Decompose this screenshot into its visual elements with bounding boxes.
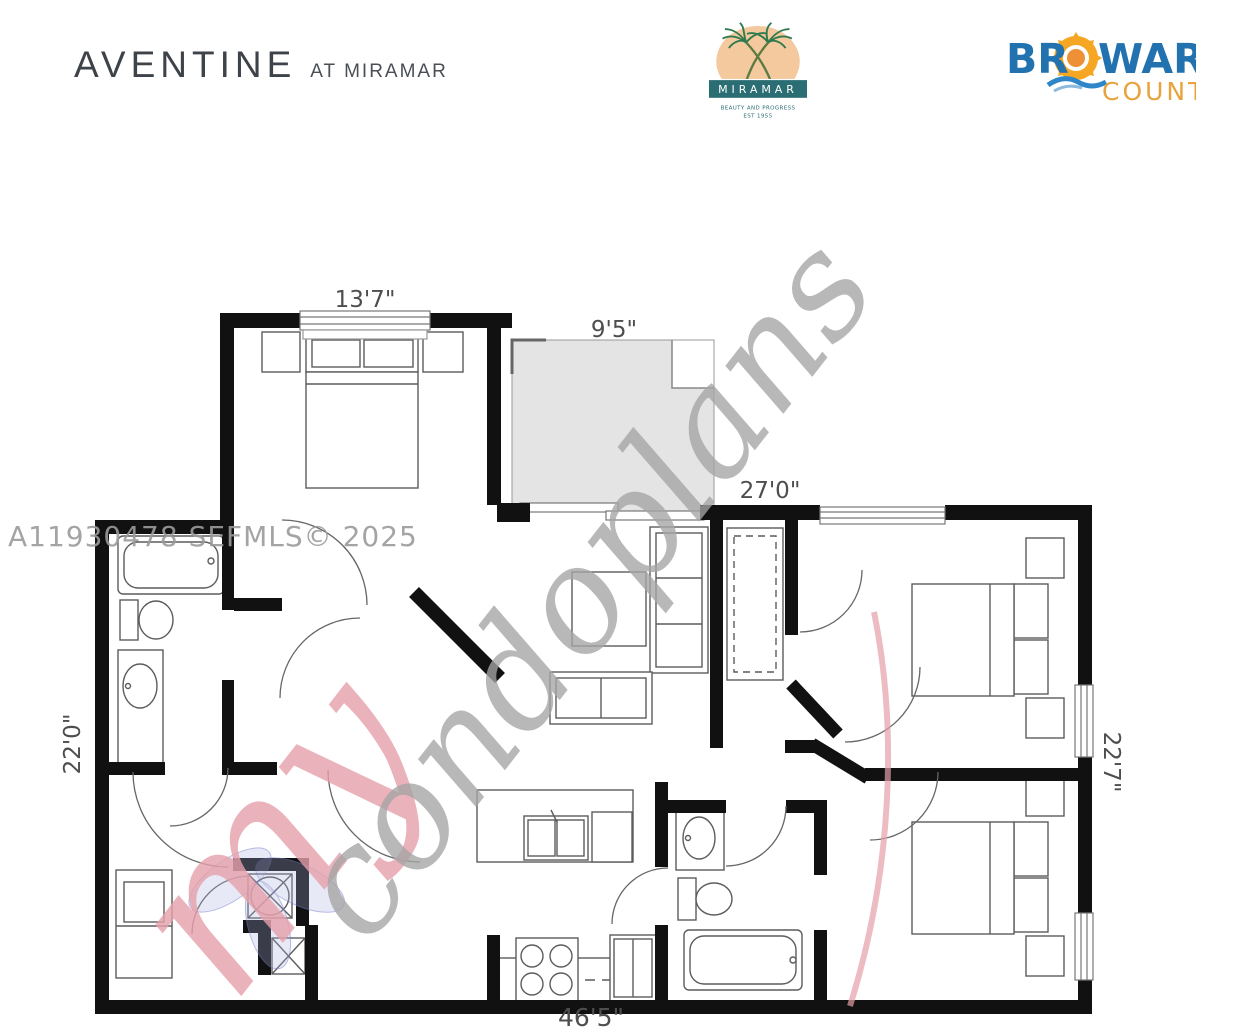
- fridge-icon: [610, 935, 656, 1001]
- bedroom2-bed-icon: [912, 538, 1064, 738]
- bedroom2-side-window: [1075, 685, 1093, 757]
- dim-left-height: 22'0": [60, 714, 86, 775]
- script-watermark-swash: [850, 612, 888, 1006]
- hall2-door-arc: [612, 868, 668, 924]
- stove-icon: [516, 938, 578, 1002]
- closet-shelves-icon: [727, 528, 783, 680]
- dim-master-width: 13'7": [335, 287, 396, 313]
- bath2-door-arc: [726, 806, 786, 866]
- bedroom3-side-window: [1075, 913, 1093, 980]
- bedroom2-top-window: [820, 507, 945, 524]
- dim-balcony-width: 9'5": [591, 317, 637, 343]
- master-window: [300, 311, 430, 339]
- bedroom3-bed-icon: [912, 776, 1064, 976]
- master-toilet-icon: [120, 600, 173, 640]
- bedroom2-door-arc: [800, 570, 862, 632]
- floorplan-sheet: AVENTINE AT MIRAMAR MIRAMAR BEAUT: [0, 0, 1239, 1033]
- floor-plan: 13'7" 9'5" 27'0" 22'0" 22'7" 46'5" A1193…: [0, 0, 1239, 1033]
- bath2-toilet-icon: [678, 878, 732, 920]
- mls-watermark: A11930478 SEFMLS© 2025: [8, 520, 418, 553]
- bath2-bathtub-icon: [684, 930, 802, 990]
- master-bed-icon: [262, 332, 463, 488]
- dim-right-height: 22'7": [1098, 732, 1124, 793]
- dim-total-width: 46'5": [558, 1003, 624, 1032]
- bath2-vanity-icon: [676, 806, 724, 870]
- master-vanity-icon: [118, 650, 163, 772]
